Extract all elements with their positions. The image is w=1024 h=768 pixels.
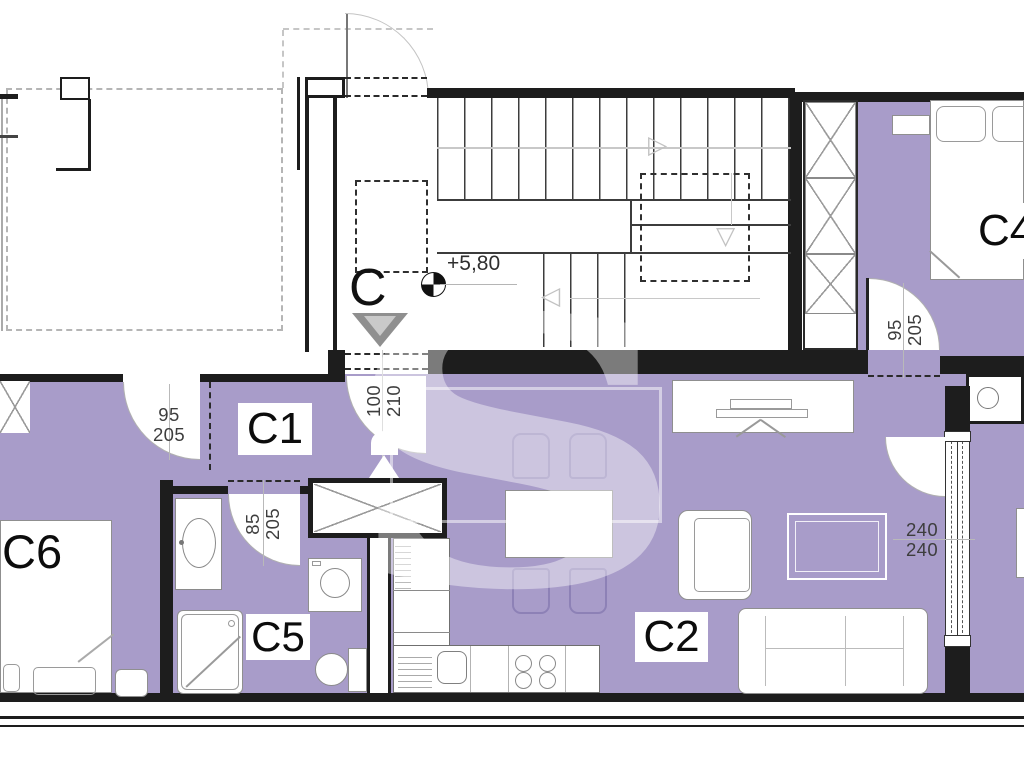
terrace-dashed-outline <box>6 88 283 331</box>
nightstand <box>892 115 930 135</box>
wardrobe-x-icon <box>0 381 30 433</box>
wall <box>160 480 173 695</box>
wall <box>0 135 18 138</box>
wall <box>60 77 90 100</box>
nightstand <box>115 669 148 697</box>
exterior-bottom-wall <box>0 693 1024 702</box>
dimension-label-c4-door: 95 205 <box>885 314 925 346</box>
dimension-label-c5-door: 85 205 <box>243 508 283 540</box>
terrace-edge-line <box>0 716 1024 719</box>
wall <box>297 77 300 170</box>
wall <box>1 99 3 331</box>
floor-plan: ▷ ▽ ◁ C +5,80 <box>0 0 1024 768</box>
entrance-door-arc <box>345 13 429 98</box>
window-frame-line <box>957 441 959 643</box>
wardrobe-x-icon <box>805 254 856 314</box>
window-pane-dashed <box>951 441 952 643</box>
washbasin <box>182 518 216 568</box>
stove-burner <box>539 672 556 689</box>
sofa <box>738 608 928 694</box>
wall <box>0 94 18 99</box>
wardrobe-x-icon <box>805 102 856 178</box>
stair-guide-line <box>437 147 791 149</box>
stair-direction-arrow-right: ▷ <box>648 133 667 158</box>
dashed-partition <box>209 382 211 470</box>
pillow <box>992 106 1024 142</box>
sofa-line <box>845 616 846 686</box>
pillow <box>936 106 986 142</box>
pillow <box>33 667 96 695</box>
dimension-label-c6-door: 95 205 <box>153 405 185 445</box>
stairwell-top-wall <box>427 88 795 98</box>
wall <box>305 77 345 98</box>
coffee-table-inner <box>795 521 879 572</box>
door-opening-dashed <box>345 77 427 79</box>
room-label-c2: C2 <box>635 612 708 662</box>
window-pane-dashed <box>962 441 963 643</box>
watermark: S <box>288 295 743 615</box>
dashed-line <box>282 30 284 88</box>
cabinet <box>1016 508 1024 578</box>
wardrobe-x-icon <box>805 178 856 254</box>
sofa-line <box>765 648 904 649</box>
room-label-c6: C6 <box>2 524 62 579</box>
wall <box>940 356 1024 374</box>
room-label-c5: C5 <box>246 614 310 660</box>
wall <box>945 386 970 437</box>
terrace-edge-line <box>0 725 1024 727</box>
wall <box>88 99 91 171</box>
pillow <box>3 664 20 692</box>
window-cap <box>944 635 971 647</box>
wall <box>56 168 91 171</box>
dimension-label-window: 240 240 <box>906 520 938 560</box>
room-label-c4: C4 <box>972 203 1024 259</box>
wall <box>173 486 228 494</box>
door-leaf <box>346 14 348 98</box>
sofa-line <box>903 616 904 686</box>
shaft-circle-icon <box>977 387 999 409</box>
sofa-line <box>765 616 766 686</box>
stove-burner <box>515 672 532 689</box>
window-cap <box>944 431 971 442</box>
dimension-label-entry-door: 100 210 <box>364 385 404 417</box>
shower-drain-icon <box>228 620 235 627</box>
door-opening-dashed <box>345 95 427 97</box>
tap-icon <box>179 540 184 545</box>
room-label-c1: C1 <box>238 403 312 455</box>
wall <box>945 647 970 697</box>
